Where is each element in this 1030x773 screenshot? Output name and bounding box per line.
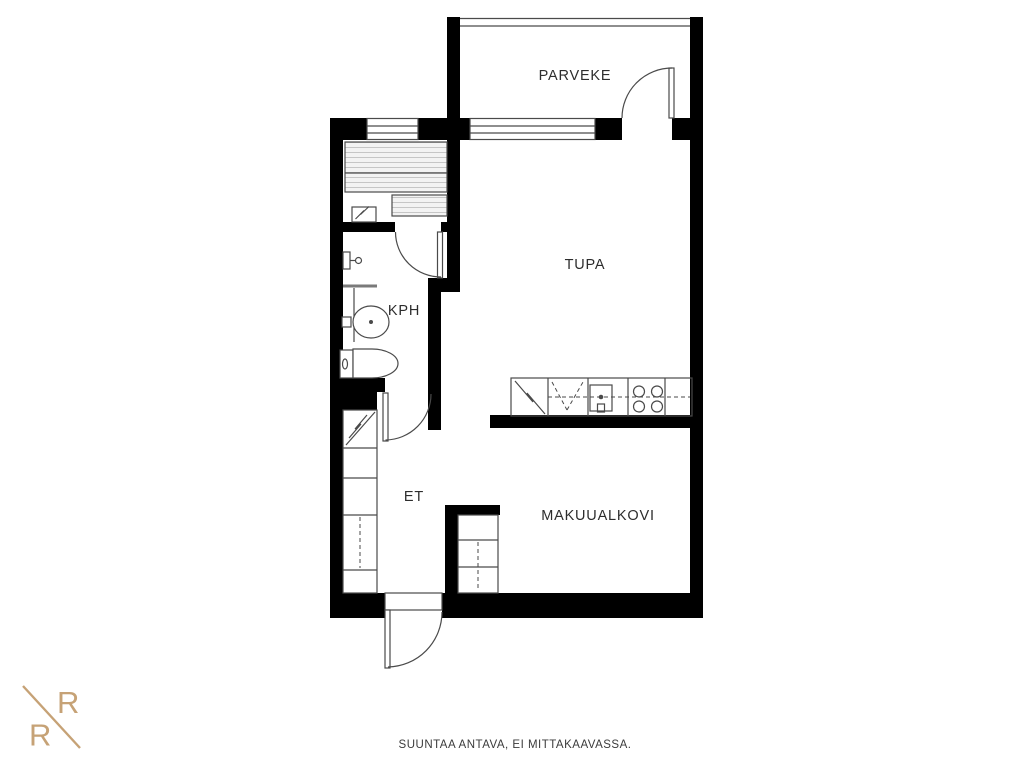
threshold [385,593,442,610]
door-leaf [438,232,443,278]
wall-segment [690,17,703,618]
door-leaf [669,68,674,118]
sauna-benches-icon [345,142,447,216]
living-room-window-icon [470,119,595,140]
floor-plan-page: PARVEKE TUPA KPH ET MAKUUALKOVI SUUNTAA … [0,0,1030,773]
wall-segment [447,17,460,118]
logo-letter-top: R [57,685,79,720]
heater-box [352,207,376,222]
wall-segment [330,222,395,232]
tap [342,317,351,327]
sauna-bench [345,142,447,192]
room-label-kph: KPH [388,303,420,319]
mixer-body [343,252,350,269]
mixer-knob [356,258,362,264]
wall-segment [672,118,703,140]
realtor-logo: R R [10,672,110,767]
disclaimer-text: SUUNTAA ANTAVA, EI MITTAKAAVASSA. [399,739,632,751]
door-swing-arc [388,612,442,667]
window-frame [367,119,418,140]
sauna-bench [392,195,447,216]
wall-segment [428,292,441,430]
flush-button [343,359,348,369]
door-leaf [385,610,390,668]
door-leaf [383,393,388,441]
wall-segment [447,140,460,280]
wall-segment [418,118,470,140]
bowl [353,349,398,378]
room-label-makuualkovi: MAKUUALKOVI [541,508,655,524]
wall-segment [330,593,385,618]
wall-segment [330,392,377,410]
floor-plan-drawing [0,0,1030,773]
sink-drain [599,395,604,400]
room-label-tupa: TUPA [565,257,606,273]
wall-segment [442,593,703,618]
wall-segment [595,118,622,140]
wall-segment [330,378,385,392]
room-label-parveke: PARVEKE [539,68,612,84]
logo-letter-bottom: R [29,718,51,753]
room-label-et: ET [404,489,424,505]
toilet-icon [340,349,398,378]
drain [369,320,373,324]
sauna-window-icon [367,119,418,140]
sauna-heater-icon [352,207,376,223]
wall-segment [445,505,500,515]
entrance-door-icon [385,593,442,668]
wall-segment [428,278,460,292]
wall-segment [490,415,703,428]
wall-segment [441,222,460,232]
room-tupa-region [460,140,690,415]
window-frame [470,119,595,140]
balcony-railing [460,19,690,27]
